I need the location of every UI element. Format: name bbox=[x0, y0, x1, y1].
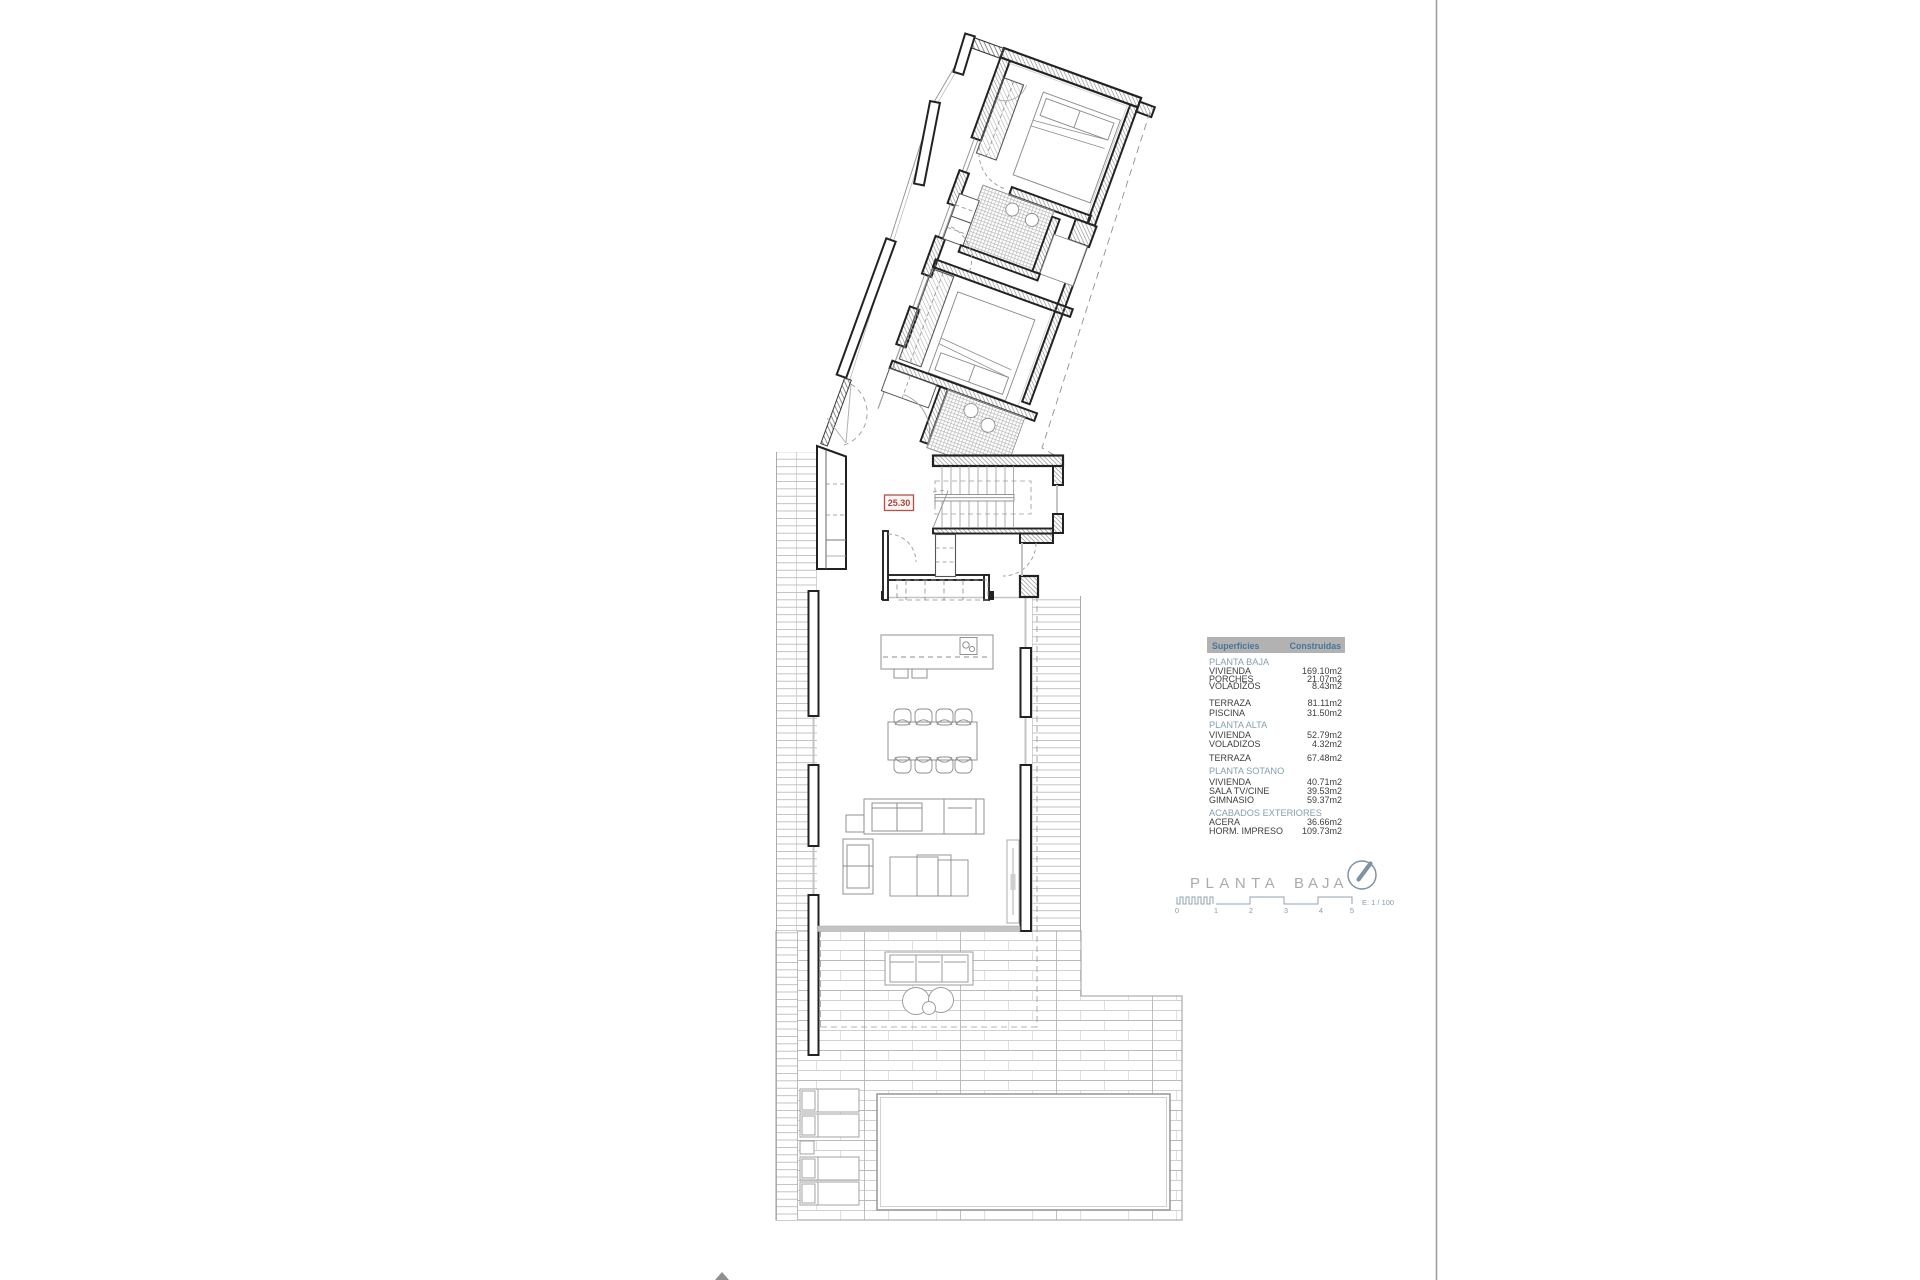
svg-text:GIMNASIO: GIMNASIO bbox=[1209, 795, 1254, 805]
svg-text:PLANTA SOTANO: PLANTA SOTANO bbox=[1209, 766, 1284, 776]
svg-text:BAJA: BAJA bbox=[1294, 875, 1348, 892]
svg-text:Construidas: Construidas bbox=[1290, 641, 1341, 651]
svg-text:VOLADIZOS: VOLADIZOS bbox=[1209, 739, 1261, 749]
svg-text:PISCINA: PISCINA bbox=[1209, 708, 1245, 718]
svg-text:4: 4 bbox=[1319, 906, 1323, 915]
svg-text:TERRAZA: TERRAZA bbox=[1209, 698, 1251, 708]
svg-text:HORM. IMPRESO: HORM. IMPRESO bbox=[1209, 826, 1283, 836]
svg-text:4.32m2: 4.32m2 bbox=[1312, 739, 1342, 749]
svg-text:PLANTA: PLANTA bbox=[1190, 875, 1280, 892]
svg-text:5: 5 bbox=[1350, 906, 1354, 915]
svg-text:59.37m2: 59.37m2 bbox=[1307, 795, 1342, 805]
svg-text:67.48m2: 67.48m2 bbox=[1307, 753, 1342, 763]
svg-text:VOLADIZOS: VOLADIZOS bbox=[1209, 681, 1261, 691]
svg-text:Superficies: Superficies bbox=[1212, 641, 1260, 651]
svg-text:TERRAZA: TERRAZA bbox=[1209, 753, 1251, 763]
svg-text:25.30: 25.30 bbox=[888, 498, 911, 508]
svg-text:1: 1 bbox=[1214, 906, 1218, 915]
svg-text:3: 3 bbox=[1284, 906, 1288, 915]
svg-text:0: 0 bbox=[1175, 906, 1179, 915]
svg-text:109.73m2: 109.73m2 bbox=[1302, 826, 1342, 836]
svg-text:81.11m2: 81.11m2 bbox=[1308, 698, 1342, 708]
svg-text:31.50m2: 31.50m2 bbox=[1307, 708, 1342, 718]
svg-text:8.43m2: 8.43m2 bbox=[1312, 681, 1342, 691]
svg-text:E: 1 / 100: E: 1 / 100 bbox=[1362, 898, 1394, 907]
svg-text:PLANTA ALTA: PLANTA ALTA bbox=[1209, 720, 1268, 730]
svg-text:2: 2 bbox=[1249, 906, 1253, 915]
